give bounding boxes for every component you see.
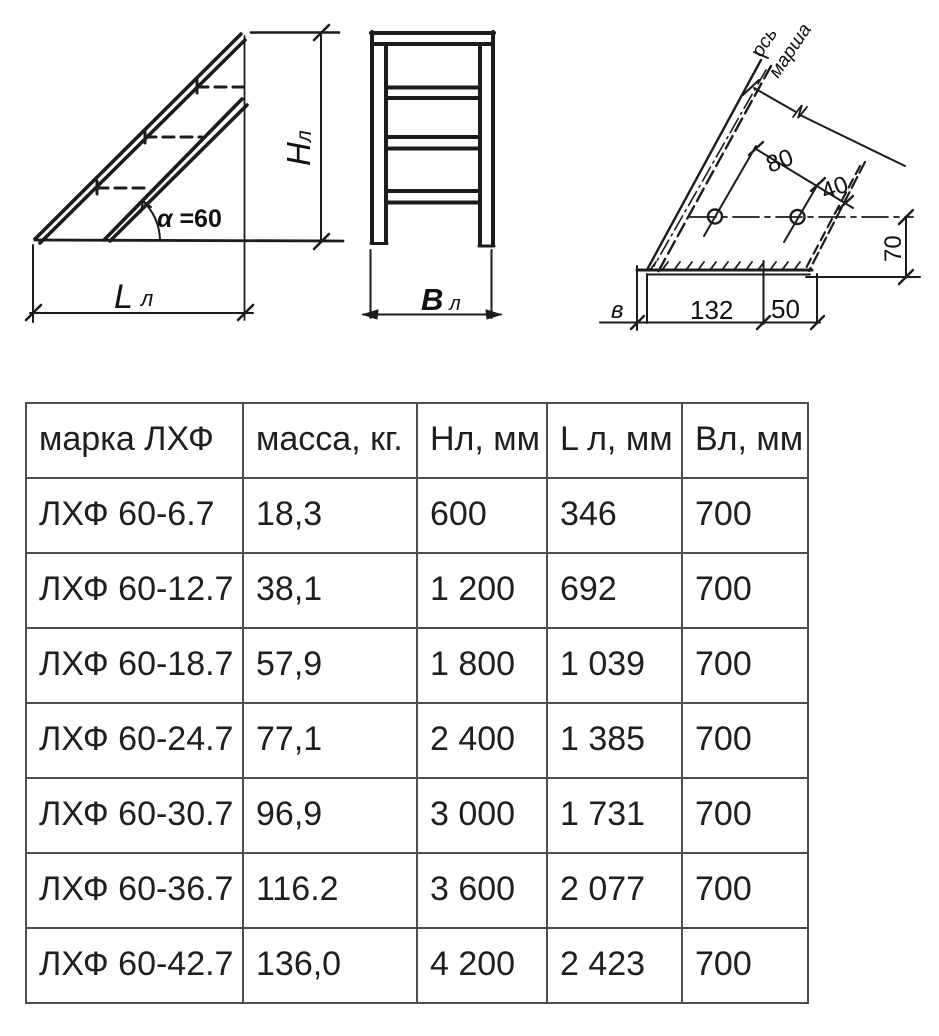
svg-text:в: в: [611, 297, 624, 324]
svg-text:132: 132: [690, 295, 733, 325]
svg-text:α =60: α =60: [157, 205, 222, 233]
svg-text:Lл: Lл: [114, 278, 153, 316]
svg-text:Hл: Hл: [280, 130, 317, 166]
svg-text:Вл: Вл: [421, 282, 461, 317]
svg-text:50: 50: [771, 294, 800, 324]
svg-text:80: 80: [762, 144, 797, 179]
svg-text:70: 70: [880, 235, 907, 262]
svg-text:марша: марша: [765, 20, 816, 82]
